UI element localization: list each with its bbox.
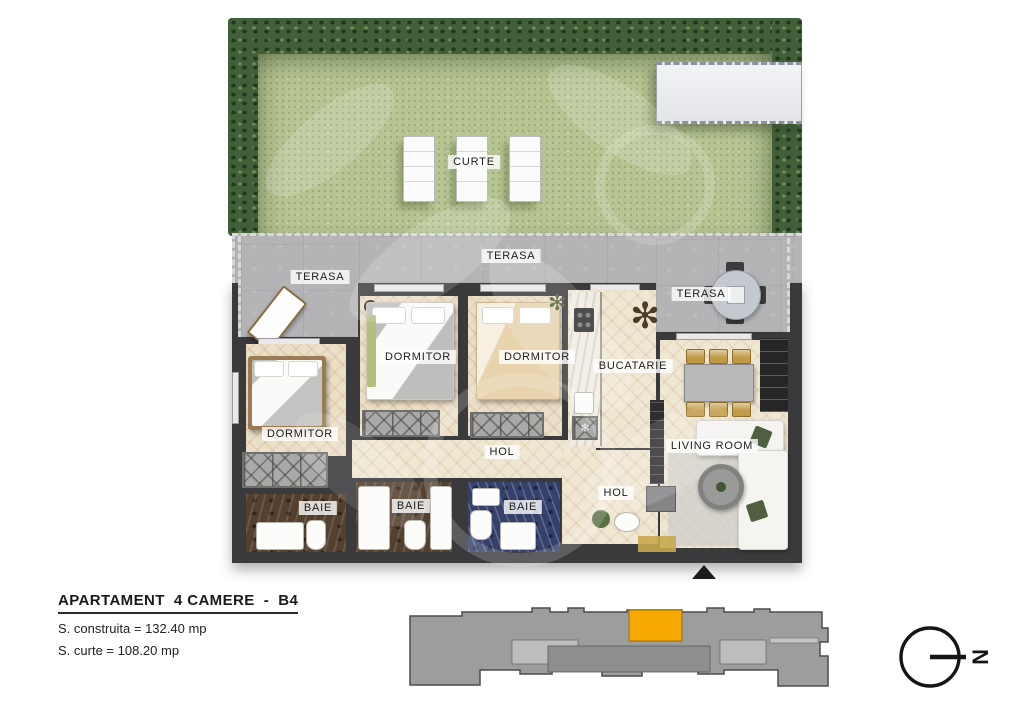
storage-bench (362, 410, 440, 437)
plant-icon: ✻ (548, 292, 566, 314)
pouf (614, 512, 640, 532)
sun-lounger (403, 136, 435, 202)
room-label-terasa-left: TERASA (291, 270, 350, 284)
console-cabinet (646, 486, 676, 512)
room-label-dormitor-1: DORMITOR (262, 427, 338, 441)
window-segment (676, 333, 752, 340)
info-block: APARTAMENT 4 CAMERE - B4 S. construita =… (58, 592, 298, 658)
north-letter: N (968, 649, 993, 665)
window-segment (374, 284, 444, 292)
toilet (306, 520, 326, 550)
window-segment (480, 284, 546, 292)
hedge-left (228, 18, 258, 236)
dining-chair (732, 349, 751, 364)
toilet (470, 510, 492, 540)
dining-table (684, 364, 754, 402)
plant-pot (592, 510, 610, 528)
doormat (638, 536, 676, 552)
room-label-dormitor-3: DORMITOR (499, 350, 575, 364)
bathtub (430, 486, 452, 550)
bathroom-sink (472, 488, 500, 506)
storage-bench (470, 412, 544, 438)
bathroom-vanity (256, 522, 304, 550)
unit-highlight (629, 610, 682, 641)
stove-icon (574, 308, 594, 332)
room-label-hol-2: HOL (598, 486, 633, 500)
bed (248, 356, 326, 430)
dining-chair (686, 349, 705, 364)
plant-pot (716, 482, 726, 492)
shower (500, 522, 536, 550)
area-built-text: S. construita = 132.40 mp (58, 621, 298, 636)
bathroom-vanity (358, 486, 390, 550)
tv-unit (760, 338, 788, 412)
room-label-baie-3: BAIE (504, 500, 542, 514)
room-label-terasa-right: TERASA (672, 287, 731, 301)
garden-courtyard (228, 18, 802, 236)
hall-1-floor (352, 440, 596, 478)
apartment-title: APARTAMENT 4 CAMERE - B4 (58, 592, 298, 614)
sun-lounger (509, 136, 541, 202)
compass-north-indicator: N (894, 616, 1018, 700)
building-locator (402, 598, 834, 698)
snowflake-icon: ❄ (580, 421, 590, 435)
room-label-hol-1: HOL (484, 445, 519, 459)
room-label-baie-1: BAIE (299, 501, 337, 515)
window-segment (232, 372, 239, 424)
hall-wardrobe (650, 400, 664, 484)
hedge-right (772, 18, 802, 236)
room-label-bucatarie: BUCATARIE (594, 359, 673, 373)
plant-icon: ✻ (630, 298, 660, 334)
area-yard-text: S. curte = 108.20 mp (58, 643, 298, 658)
room-label-baie-2: BAIE (392, 499, 430, 513)
freezer-unit: ❄ (572, 416, 598, 440)
room-label-living-room: LIVING ROOM (666, 439, 758, 453)
room-label-dormitor-2: DORMITOR (380, 350, 456, 364)
walkway-structure (656, 62, 802, 124)
wardrobe (242, 452, 328, 488)
dining-chair (709, 349, 728, 364)
kitchen-sink (574, 392, 594, 414)
entrance-arrow-icon (692, 565, 716, 579)
dining-chair (686, 402, 705, 417)
dining-chair (709, 402, 728, 417)
room-label-curte: CURTE (448, 155, 500, 169)
dining-chair (732, 402, 751, 417)
toilet (404, 520, 426, 550)
room-label-terasa-center: TERASA (482, 249, 541, 263)
floorplan-page: ❄ ✻ ✻ CURTE (0, 0, 1024, 724)
sun-lounger (456, 136, 488, 202)
hedge-top (228, 18, 802, 54)
